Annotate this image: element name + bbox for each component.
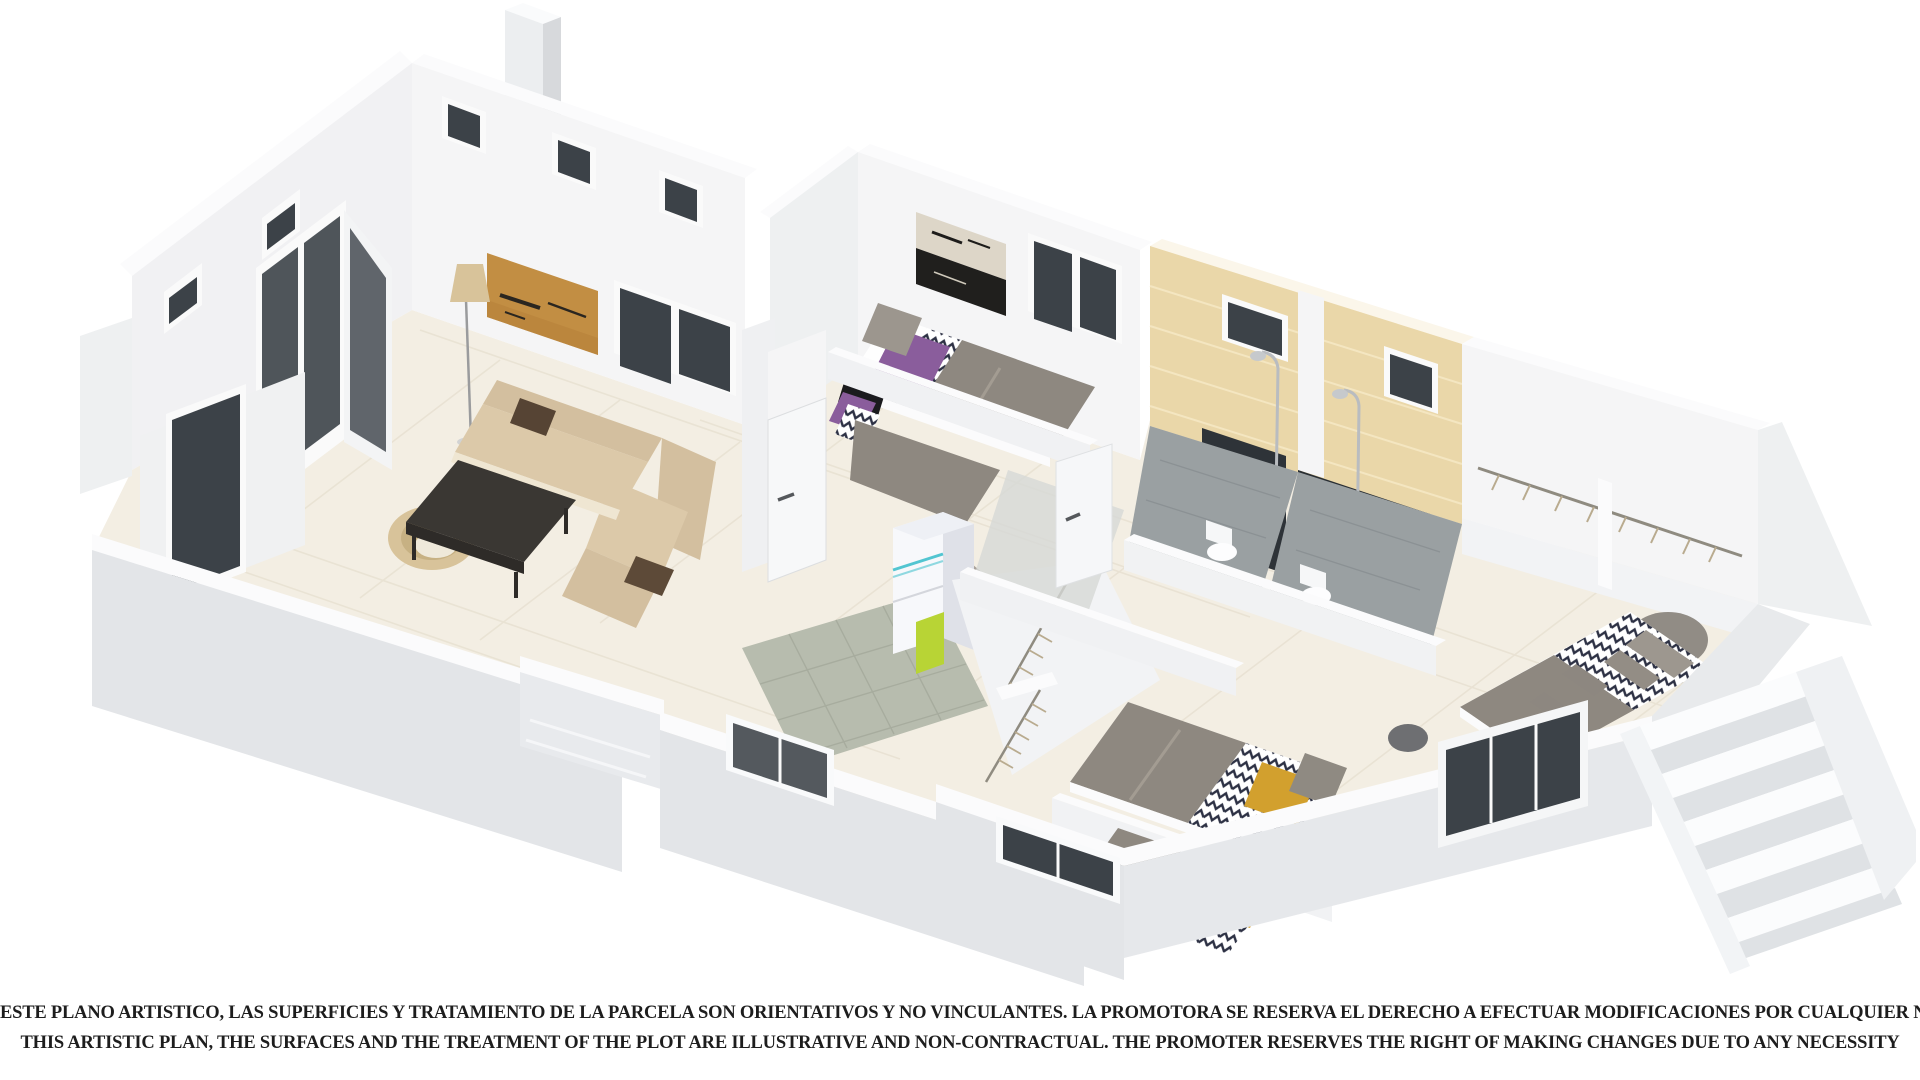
interior-door-1 <box>768 398 826 582</box>
lime-cabinet <box>916 612 944 674</box>
desk-chair <box>1388 724 1428 752</box>
wardrobe-divider-2 <box>1598 478 1612 590</box>
page: ESTE PLANO ARTISTICO, LAS SUPERFICIES Y … <box>0 0 1920 1080</box>
interior-door-2 <box>1056 444 1112 588</box>
disclaimer: ESTE PLANO ARTISTICO, LAS SUPERFICIES Y … <box>0 998 1920 1058</box>
hallway-wall-and-door <box>742 318 826 582</box>
disclaimer-line-spanish: ESTE PLANO ARTISTICO, LAS SUPERFICIES Y … <box>0 998 1920 1028</box>
floor-plan-render <box>0 0 1920 1080</box>
disclaimer-line-english: THIS ARTISTIC PLAN, THE SURFACES AND THE… <box>0 1028 1920 1058</box>
bathroom-divider-wall <box>1298 290 1324 478</box>
